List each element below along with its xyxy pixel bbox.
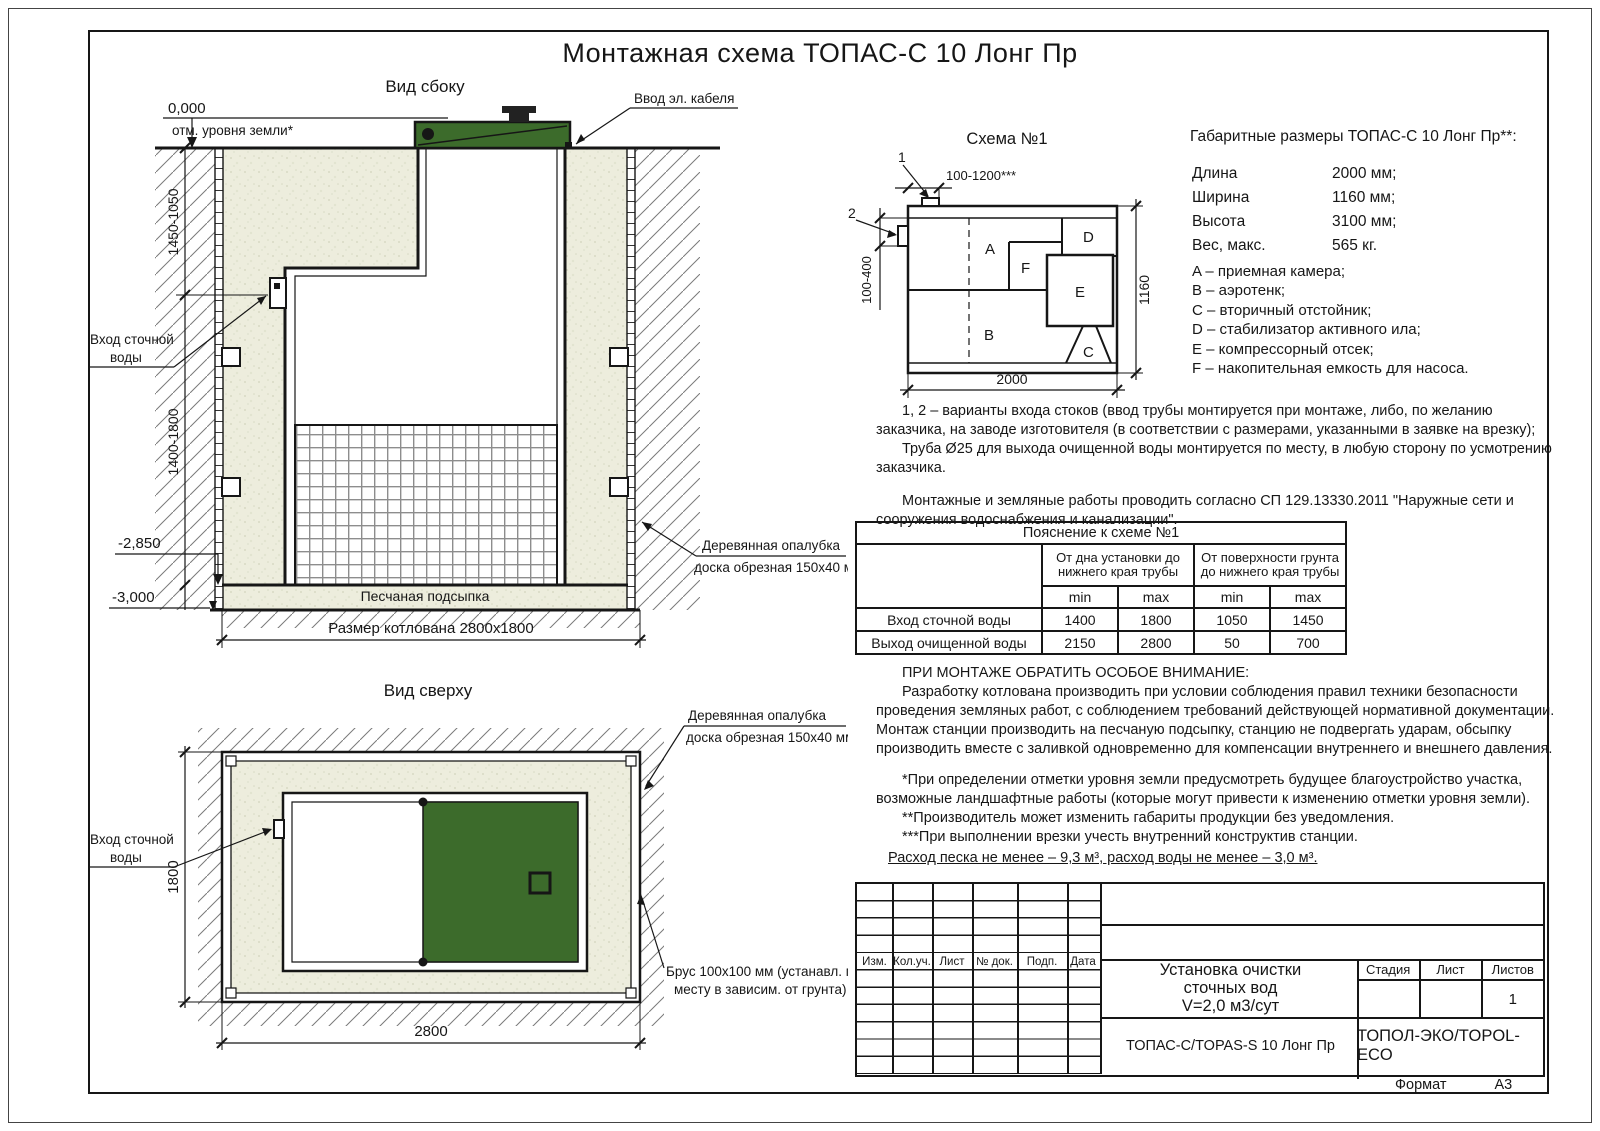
inlet-stub-top <box>274 820 284 838</box>
legend-item: C – вторичный отстойник; <box>1192 301 1552 320</box>
stage-sheet-grid: Стадия Лист Листов 1 <box>1357 959 1544 1017</box>
svg-text:E: E <box>1075 284 1085 301</box>
attention-star3: ***При выполнении врезки учесть внутренн… <box>876 828 1556 847</box>
svg-text:Брус 100x100 мм (устанавл. по: Брус 100x100 мм (устанавл. по <box>666 964 848 979</box>
svg-text:1160: 1160 <box>1136 275 1152 305</box>
table-row: Вход сточной воды 1400 1800 1050 1450 <box>856 608 1346 631</box>
compartment-legend: A – приемная камера; B – аэротенк; C – в… <box>1192 262 1552 378</box>
schema1-explanation-table: Пояснение к схеме №1 От дна установки до… <box>855 521 1347 655</box>
format-note: Формат А3 <box>1355 1077 1555 1093</box>
svg-text:B: B <box>984 327 994 344</box>
svg-text:воды: воды <box>110 850 142 865</box>
specs-list: Длина2000 мм; Ширина1160 мм; Высота3100 … <box>1192 162 1522 258</box>
svg-text:доска обрезная 150x40 мм: доска обрезная 150x40 мм <box>686 730 848 745</box>
attention-body: Разработку котлована производить при усл… <box>876 683 1556 759</box>
beam-label: Брус 100x100 мм (устанавл. по месту в за… <box>637 894 848 997</box>
svg-text:месту в зависим. от грунта): месту в зависим. от грунта) <box>674 982 846 997</box>
cable-entry-point <box>565 142 572 149</box>
title-block: Изм. Кол.уч. Лист № док. Подп. Дата Уста… <box>855 882 1545 1077</box>
table-row: Выход очищенной воды 2150 2800 50 700 <box>856 631 1346 654</box>
svg-text:F: F <box>1021 260 1030 277</box>
pit-size-label: Размер котлована 2800x1800 <box>328 620 533 637</box>
station-lid <box>415 106 572 149</box>
svg-text:C: C <box>1083 344 1094 361</box>
attention-block: ПРИ МОНТАЖЕ ОБРАТИТЬ ОСОБОЕ ВНИМАНИЕ: Ра… <box>876 664 1556 847</box>
svg-text:Деревянная опалубка: Деревянная опалубка <box>702 538 841 553</box>
sheets-count: 1 <box>1482 991 1544 1008</box>
note-pipe: Труба Ø25 для выхода очищенной воды монт… <box>876 440 1556 478</box>
schema-inlet1: 1 100-1200*** <box>895 149 1016 206</box>
notes-block: 1, 2 – варианты входа стоков (ввод трубы… <box>876 402 1556 530</box>
table-group2: От поверхности грунта до нижнего края тр… <box>1194 544 1346 586</box>
svg-text:Вход сточной: Вход сточной <box>90 832 174 847</box>
station-mesh-zone <box>295 425 557 585</box>
svg-text:D: D <box>1083 229 1094 246</box>
station-lid-top <box>423 802 578 962</box>
cable-entry-label: Ввод эл. кабеля <box>576 91 738 144</box>
svg-text:-3,000: -3,000 <box>112 589 155 606</box>
inlet-stub <box>270 278 286 308</box>
lid-vent <box>509 112 529 122</box>
top-view-title: Вид сверху <box>384 681 473 700</box>
formwork-label-top: Деревянная опалубка доска обрезная 150x4… <box>644 708 848 790</box>
specs-title: Габаритные размеры ТОПАС-С 10 Лонг Пр**: <box>1190 128 1550 146</box>
svg-text:отм. уровня земли*: отм. уровня земли* <box>172 123 294 138</box>
schema-inlet2: 2 100-400 <box>848 205 908 310</box>
svg-text:2000: 2000 <box>996 371 1027 387</box>
svg-text:100-1200***: 100-1200*** <box>946 168 1016 183</box>
legend-item: E – компрессорный отсек; <box>1192 340 1552 359</box>
company-name: ТОПОЛ-ЭКО/TOPOL-ECO <box>1357 1017 1547 1074</box>
spec-row: Ширина1160 мм; <box>1192 186 1522 210</box>
page-title: Монтажная схема ТОПАС-С 10 Лонг Пр <box>560 38 1080 69</box>
svg-text:2800: 2800 <box>414 1023 447 1040</box>
sand-bed-label: Песчаная подсыпка <box>361 588 490 604</box>
schema-title: Схема №1 <box>966 130 1047 148</box>
svg-text:Ввод эл. кабеля: Ввод эл. кабеля <box>634 91 734 106</box>
lid-hatch-detail <box>530 873 550 893</box>
schema1-drawing: Схема №1 A B C D E F 1 <box>840 120 1180 420</box>
dim-lower: 1400-1800 <box>165 408 181 475</box>
level-zero-mark: 0,000 отм. уровня земли* <box>163 100 448 148</box>
consumption-note: Расход песка не менее – 9,3 м³, расход в… <box>888 850 1317 866</box>
svg-text:0,000: 0,000 <box>168 100 206 117</box>
side-view-title: Вид сбоку <box>385 77 465 96</box>
table-empty-header <box>856 544 1042 608</box>
table-group1: От дна установки до нижнего края трубы <box>1042 544 1194 586</box>
revision-headers: Изм. Кол.уч. Лист № док. Подп. Дата <box>857 954 1099 970</box>
product-title: Установка очистки сточных вод V=2,0 м3/с… <box>1104 959 1357 1017</box>
station-top <box>274 793 587 971</box>
table-title: Пояснение к схеме №1 <box>856 522 1346 544</box>
svg-text:доска обрезная 150x40 мм: доска обрезная 150x40 мм <box>694 560 848 575</box>
legend-item: F – накопительная емкость для насоса. <box>1192 359 1552 378</box>
attention-star1: *При определении отметки уровня земли пр… <box>876 771 1556 809</box>
legend-item: D – стабилизатор активного ила; <box>1192 320 1552 339</box>
spec-row: Длина2000 мм; <box>1192 162 1522 186</box>
side-view-drawing: Вид сбоку <box>88 70 848 664</box>
top-view-drawing: Вид сверху <box>88 672 848 1084</box>
svg-text:-2,850: -2,850 <box>118 535 161 552</box>
model-name: ТОПАС-С/TOPAS-S 10 Лонг Пр <box>1104 1017 1357 1074</box>
attention-heading: ПРИ МОНТАЖЕ ОБРАТИТЬ ОСОБОЕ ВНИМАНИЕ: <box>876 664 1556 683</box>
note-variants: 1, 2 – варианты входа стоков (ввод трубы… <box>876 402 1556 440</box>
legend-item: A – приемная камера; <box>1192 262 1552 281</box>
schema-dim-2000: 2000 <box>900 371 1125 398</box>
dim-upper: 1450-1050 <box>165 188 181 255</box>
legend-item: B – аэротенк; <box>1192 281 1552 300</box>
spec-row: Высота3100 мм; <box>1192 210 1522 234</box>
revision-grid: Изм. Кол.уч. Лист № док. Подп. Дата <box>857 884 1102 1074</box>
svg-text:Деревянная опалубка: Деревянная опалубка <box>688 708 827 723</box>
drawing-sheet: Монтажная схема ТОПАС-С 10 Лонг Пр <box>0 0 1600 1131</box>
attention-star2: **Производитель может изменить габариты … <box>876 809 1556 828</box>
svg-text:A: A <box>985 241 995 258</box>
svg-text:100-400: 100-400 <box>859 256 874 304</box>
svg-text:1: 1 <box>898 149 906 165</box>
svg-text:Вход сточной: Вход сточной <box>90 332 174 347</box>
svg-text:воды: воды <box>110 350 142 365</box>
schema-dim-1160: 1160 <box>1117 199 1152 380</box>
svg-text:2: 2 <box>848 205 856 221</box>
spec-row: Вес, макс.565 кг. <box>1192 234 1522 258</box>
